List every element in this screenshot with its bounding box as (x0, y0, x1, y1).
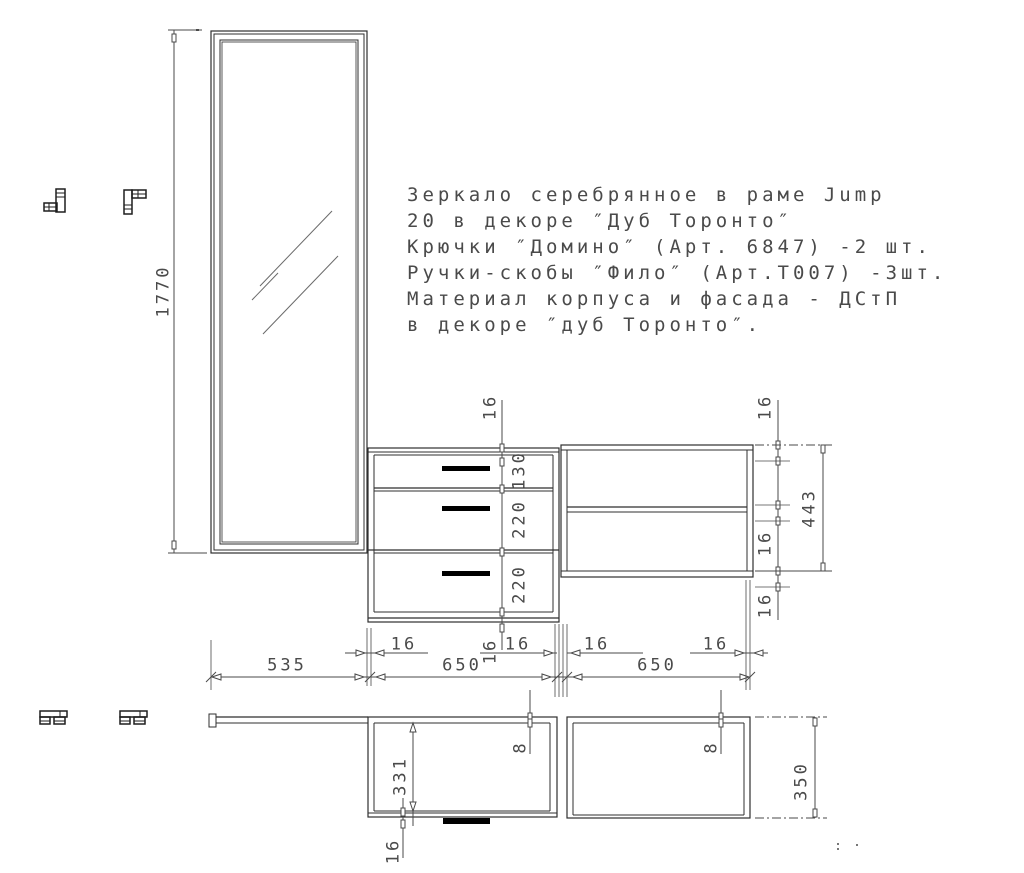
dim-panel-thickness-3: 16 (584, 637, 610, 654)
stray-dots (837, 843, 858, 850)
dim-drawer-unit-width: 650 (442, 658, 482, 675)
description-line: Крючки ″Домино″ (Арт. 6847) -2 шт. (407, 238, 932, 257)
description-line: Материал корпуса и фасада - ДСтП (407, 290, 901, 309)
dim-shelf-unit-height: 443 (802, 488, 819, 528)
dim-shelf-unit-width: 650 (637, 658, 677, 675)
drawer-3-handle (442, 571, 490, 576)
dim-drawer-top-panel: 16 (483, 394, 500, 420)
dim-drawer-1-height: 130 (512, 450, 529, 490)
corner-section-icon-top-right (124, 190, 146, 214)
plan-section-icon-left (40, 711, 67, 724)
dim-drawer-bottom-panel: 16 (483, 638, 500, 664)
description-line: 20 в декоре ″Дуб Торонто″ (407, 212, 793, 231)
dim-shelf-middle-panel: 16 (758, 530, 775, 556)
dim-drawer-2-height: 220 (512, 499, 529, 539)
dim-panel-thickness-1: 16 (391, 637, 417, 654)
dim-panel-thickness-2: 16 (505, 637, 531, 654)
dim-mirror-width: 535 (267, 658, 307, 675)
drawer-1-handle (442, 466, 490, 471)
mirror-front-view (211, 31, 367, 553)
shelf-unit-front-view (561, 445, 753, 577)
cad-drawing-canvas: Зеркало серебрянное в раме Jump 20 в дек… (0, 0, 1024, 873)
drawer-handles (442, 466, 490, 576)
description-line: Зеркало серебрянное в раме Jump (407, 186, 886, 205)
plan-view (209, 714, 750, 818)
corner-section-icon-top-left (44, 189, 65, 212)
description-line: в декоре ″дуб Торонто″. (407, 316, 762, 335)
drawer-unit-front-view (368, 448, 559, 622)
plan-drawer-handle (443, 818, 490, 824)
dimension-lines (168, 29, 832, 858)
plan-section-icon-right (120, 711, 147, 724)
dim-shelf-top-panel: 16 (758, 394, 775, 420)
mirror-glass-marks (252, 211, 338, 334)
dim-shelf-bottom-panel: 16 (758, 592, 775, 618)
dim-plan-back-gap-left: 8 (513, 740, 530, 753)
dim-plan-unit-depth: 350 (794, 761, 811, 801)
dim-panel-thickness-4: 16 (703, 637, 729, 654)
dim-mirror-height: 1770 (156, 265, 173, 318)
dim-plan-front-panel: 16 (386, 838, 403, 864)
dim-drawer-3-height: 220 (512, 564, 529, 604)
dim-plan-inner-depth: 331 (393, 756, 410, 796)
description-line: Ручки-скобы ″Фило″ (Арт.Т007) -3шт. (407, 264, 947, 283)
drawer-2-handle (442, 506, 490, 511)
dim-plan-back-gap-right: 8 (704, 740, 721, 753)
